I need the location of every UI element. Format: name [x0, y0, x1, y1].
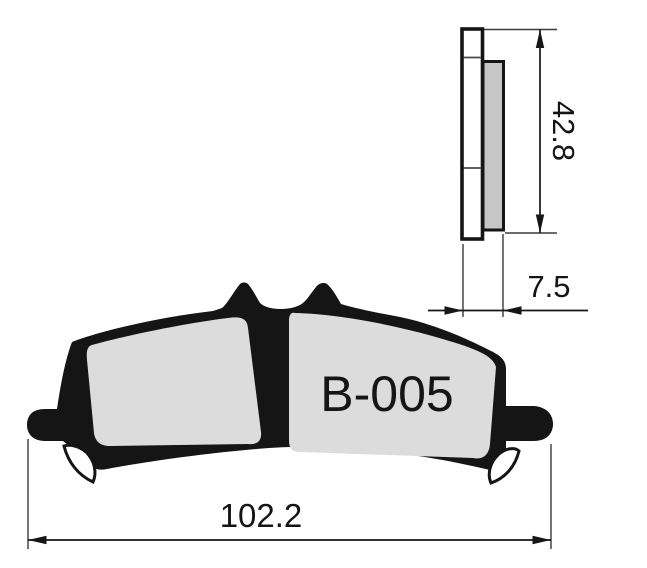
technical-drawing-page: 42.8 7.5 B-005 102.2: [0, 0, 647, 568]
arrowhead-down-icon: [536, 215, 544, 234]
brake-pad-drawing: 42.8 7.5 B-005 102.2: [0, 0, 647, 568]
thickness-dimension: 7.5: [428, 234, 588, 317]
thickness-dimension-label: 7.5: [527, 269, 570, 304]
side-profile-view: [462, 29, 504, 239]
arrowhead-left-icon: [503, 306, 522, 314]
front-view: B-005: [27, 283, 553, 484]
length-dimension-label: 102.2: [220, 497, 303, 534]
arrowhead-right-icon: [445, 306, 464, 314]
part-number-label: B-005: [320, 366, 453, 422]
friction-material-side: [483, 62, 504, 231]
arrowhead-right-icon: [533, 536, 552, 544]
arrowhead-up-icon: [536, 30, 544, 49]
height-dimension-label: 42.8: [546, 101, 581, 161]
backing-plate-side: [462, 29, 483, 239]
arrowhead-left-icon: [28, 536, 47, 544]
